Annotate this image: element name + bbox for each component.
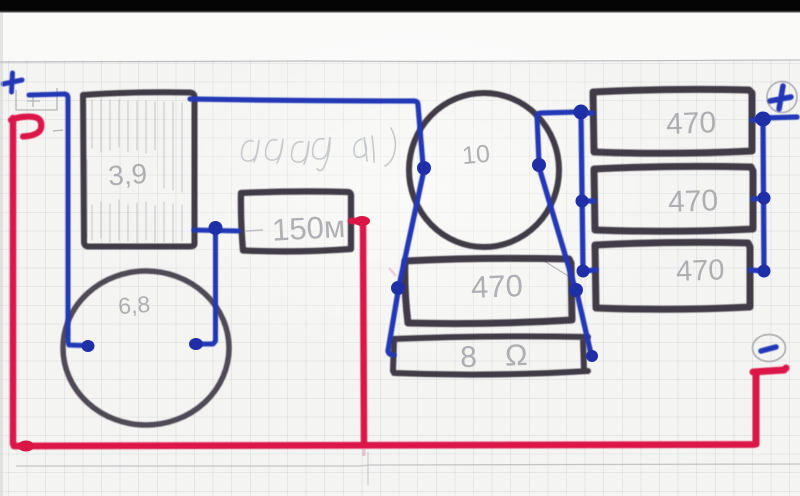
svg-text:10: 10 — [461, 140, 491, 170]
svg-text:470: 470 — [470, 268, 523, 305]
svg-text:150м: 150м — [271, 209, 346, 248]
svg-text:470: 470 — [667, 184, 718, 219]
svg-text:8 Ω: 8 Ω — [460, 339, 539, 375]
svg-text:6,8: 6,8 — [117, 291, 151, 319]
svg-text:470: 470 — [676, 254, 725, 288]
svg-text:470: 470 — [665, 106, 716, 141]
svg-text:3,9: 3,9 — [107, 158, 148, 192]
